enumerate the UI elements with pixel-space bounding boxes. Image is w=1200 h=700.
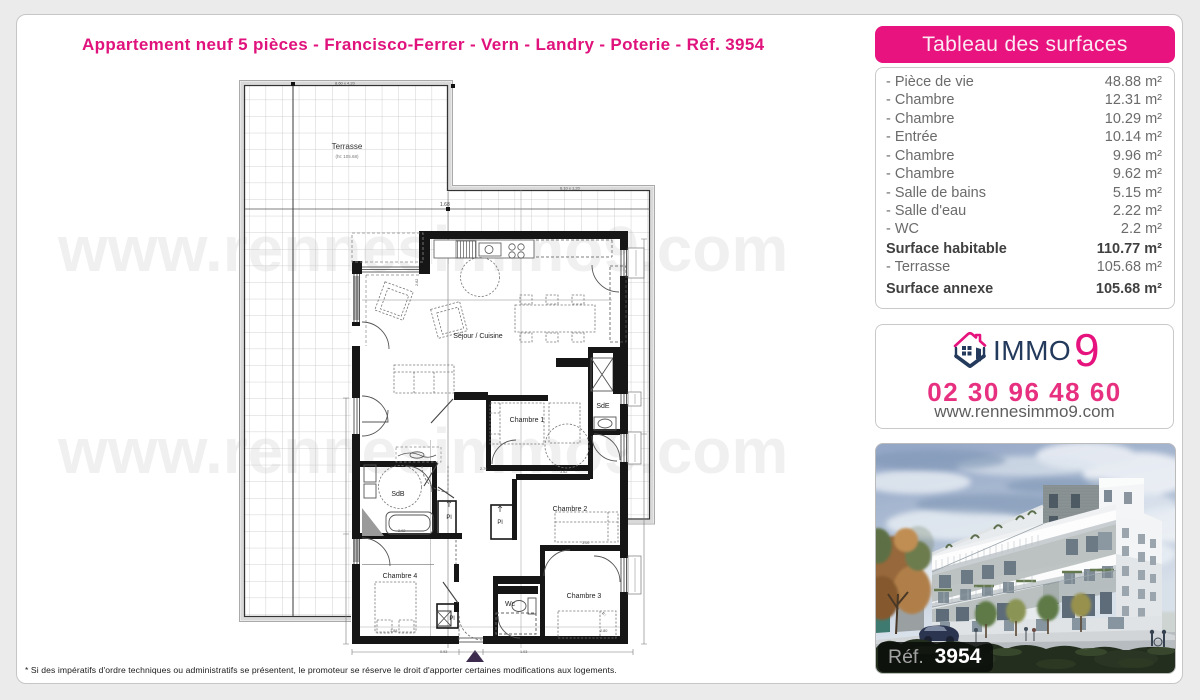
svg-text:8.60 x 4.20: 8.60 x 4.20 [335, 81, 356, 86]
svg-text:Séjour / Cuisine: Séjour / Cuisine [453, 333, 503, 340]
svg-text:1.88: 1.88 [390, 629, 397, 633]
svg-text:2.79: 2.79 [480, 467, 487, 471]
svg-text:SdE: SdE [596, 403, 610, 410]
svg-text:IMMO: IMMO [993, 335, 1071, 366]
svg-text:2.62: 2.62 [415, 279, 419, 286]
svg-text:1.68: 1.68 [440, 202, 450, 208]
svg-text:9: 9 [1074, 329, 1100, 371]
svg-text:2.80: 2.80 [600, 629, 607, 633]
svg-text:3.00: 3.00 [582, 541, 589, 545]
svg-text:1.03: 1.03 [520, 650, 527, 654]
svg-text:Terrasse: Terrasse [332, 142, 363, 151]
svg-text:3.62: 3.62 [560, 470, 567, 474]
svg-text:2.02: 2.02 [398, 529, 405, 533]
svg-text:Chambre 3: Chambre 3 [567, 593, 602, 600]
svg-text:Pl: Pl [446, 515, 451, 521]
svg-text:SdB: SdB [391, 491, 405, 498]
svg-text:Pl: Pl [449, 616, 454, 622]
svg-text:Chambre 4: Chambre 4 [383, 573, 418, 580]
svg-text:0.93: 0.93 [440, 650, 447, 654]
svg-text:(ht: 105.68): (ht: 105.68) [335, 154, 359, 159]
svg-text:Pl: Pl [497, 520, 502, 526]
svg-text:6.10 x 1.20: 6.10 x 1.20 [560, 186, 581, 191]
svg-text:Wc: Wc [505, 601, 516, 608]
svg-text:Chambre 1: Chambre 1 [510, 417, 545, 424]
svg-text:Chambre 2: Chambre 2 [553, 506, 588, 513]
